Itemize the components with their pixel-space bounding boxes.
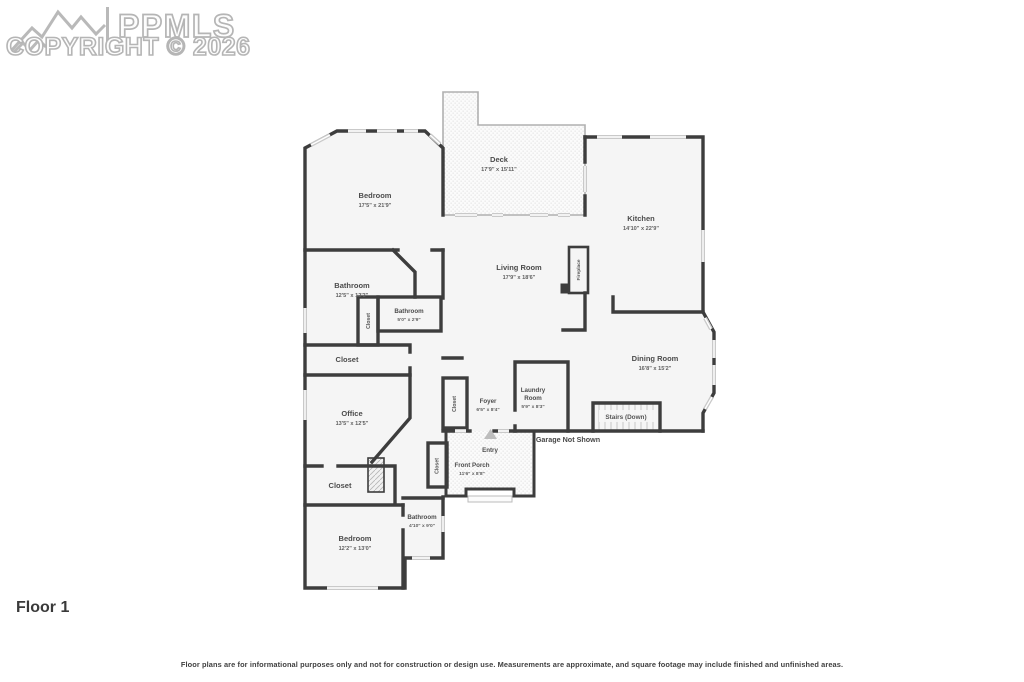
disclaimer-text: Floor plans are for informational purpos…	[0, 660, 1024, 669]
room-dims-bathroom-lower: 4'10" x 9'0"	[409, 523, 435, 529]
floor-label: Floor 1	[16, 599, 69, 617]
label-fireplace: Fireplace	[576, 259, 582, 280]
label-closet-foyer: Closet	[452, 396, 458, 412]
room-label-deck: Deck	[490, 155, 509, 164]
room-dims-office: 13'5" x 12'5"	[336, 421, 369, 427]
hatched-closet	[368, 458, 384, 492]
porch-step	[468, 496, 512, 502]
room-label-bathroom-small: Bathroom	[394, 308, 424, 315]
room-label-laundry-1: Laundry	[521, 387, 546, 394]
label-closet-bath: Closet	[366, 313, 372, 329]
room-label-dining-room: Dining Room	[632, 354, 679, 363]
room-label-front-porch: Front Porch	[454, 462, 489, 469]
label-entry: Entry	[482, 447, 498, 454]
room-dims-front-porch: 11'6" x 8'8"	[459, 471, 485, 477]
room-dims-deck: 17'9" x 15'11"	[481, 167, 517, 173]
room-dims-dining-room: 16'8" x 15'2"	[639, 366, 672, 372]
room-label-bathroom-lower: Bathroom	[407, 514, 437, 521]
room-dims-bedroom-lower: 12'2" x 13'0"	[339, 546, 372, 552]
room-label-bathroom-large: Bathroom	[334, 281, 370, 290]
room-label-office: Office	[341, 409, 362, 418]
room-dims-foyer: 6'5" x 8'4"	[476, 407, 499, 413]
room-label-living-room: Living Room	[496, 263, 542, 272]
room-dims-kitchen: 14'10" x 22'9"	[623, 226, 659, 232]
room-label-foyer: Foyer	[480, 398, 497, 405]
room-dims-living-room: 17'9" x 18'6"	[503, 275, 536, 281]
label-garage-note: Garage Not Shown	[536, 435, 600, 444]
floor-plan: Bedroom 17'5" x 21'9" Deck 17'9" x 15'11…	[0, 0, 1024, 682]
room-dims-bathroom-small: 5'0" x 2'9"	[397, 317, 420, 323]
room-label-bedroom-lower: Bedroom	[339, 534, 372, 543]
room-label-laundry-2: Room	[524, 395, 542, 402]
room-label-bedroom-upper: Bedroom	[359, 191, 392, 200]
room-dims-bedroom-upper: 17'5" x 21'9"	[359, 203, 392, 209]
label-stairs: Stairs (Down)	[605, 414, 646, 421]
label-closet-mid: Closet	[336, 355, 359, 364]
label-closet-entry: Closet	[435, 458, 441, 474]
room-dims-laundry: 5'9" x 8'3"	[521, 404, 544, 410]
room-dims-bathroom-large: 12'5" x 12'3"	[336, 293, 369, 299]
deck-area	[443, 92, 585, 215]
label-closet-lower: Closet	[329, 481, 352, 490]
room-label-kitchen: Kitchen	[627, 214, 655, 223]
